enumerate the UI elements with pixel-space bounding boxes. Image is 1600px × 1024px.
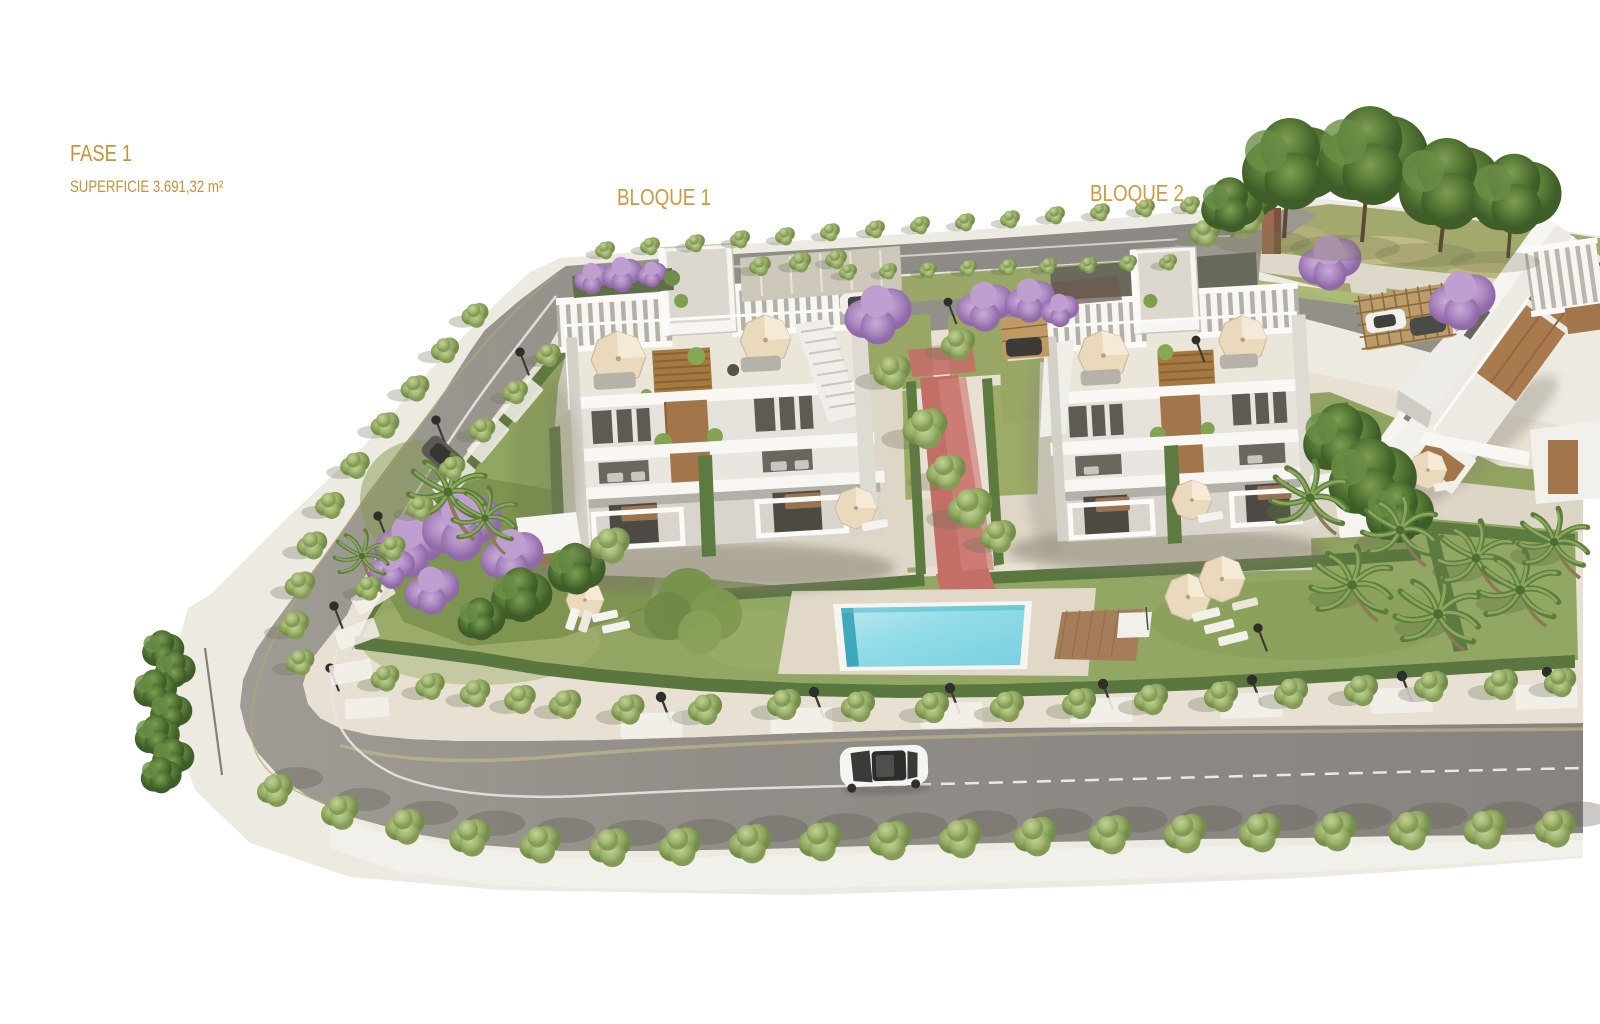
svg-text:FASE 1: FASE 1 bbox=[70, 141, 132, 167]
svg-text:BLOQUE 2: BLOQUE 2 bbox=[1090, 180, 1184, 207]
svg-text:BLOQUE 1: BLOQUE 1 bbox=[617, 184, 711, 211]
svg-text:SUPERFICIE 3.691,32 m²: SUPERFICIE 3.691,32 m² bbox=[70, 178, 223, 197]
